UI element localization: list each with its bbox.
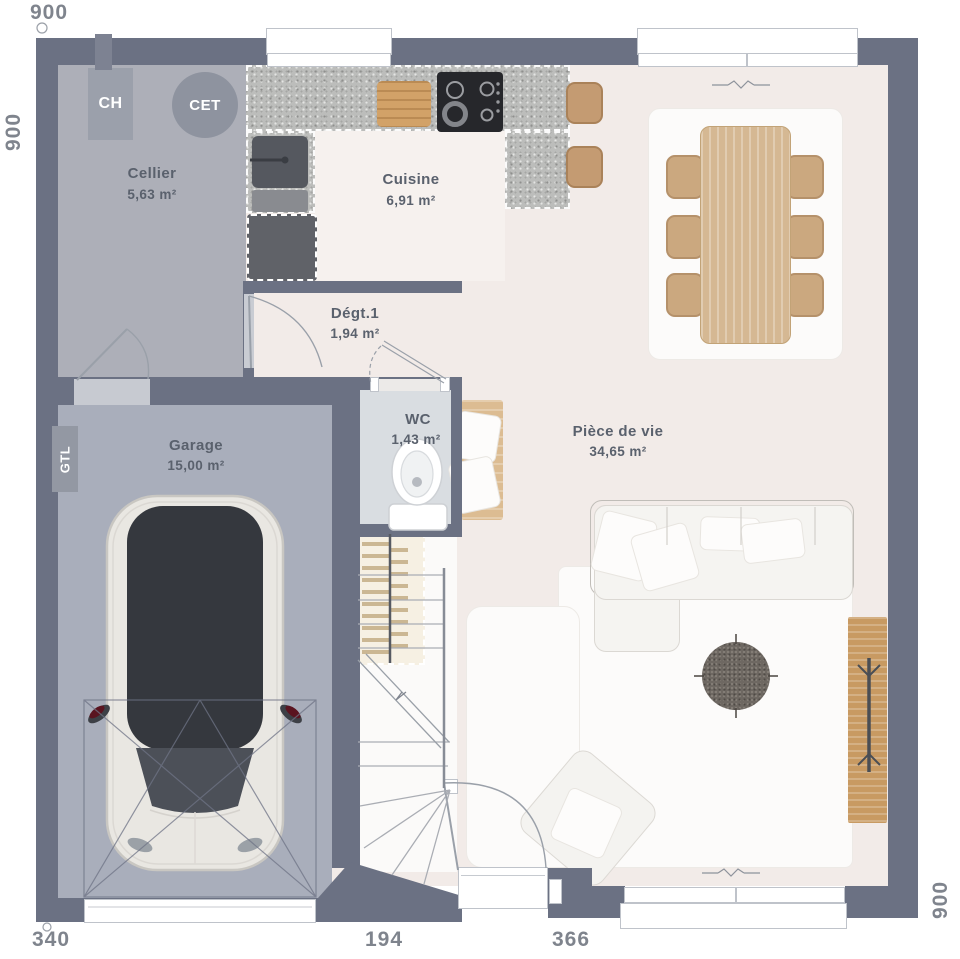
door-jamb: [440, 377, 450, 392]
room-area-wc: 1,43 m²: [391, 432, 440, 447]
window-mullion: [735, 887, 737, 903]
entry-door-jamb: [549, 879, 562, 904]
dimension-bottom-living: 366: [552, 928, 590, 952]
entry-door-frame-line: [461, 872, 545, 876]
room-label-cellier: Cellier: [128, 165, 177, 182]
gtl-box: GTL: [52, 426, 78, 492]
door-jamb: [444, 779, 458, 794]
garage-door-line: [88, 906, 312, 908]
door-gap-wc: [372, 379, 444, 391]
wall-wc-bottom: [358, 524, 462, 537]
dining-chair: [786, 273, 824, 317]
window-top-dining-frame: [638, 53, 858, 67]
door-gap-garage-cellier: [74, 379, 150, 405]
boiler-flue: [95, 34, 112, 70]
room-label-piece-de-vie: Pièce de vie: [573, 423, 664, 440]
cooktop: [437, 72, 503, 132]
window-top-kitchen-frame: [267, 53, 391, 67]
water-heater-label: CET: [189, 97, 221, 114]
bar-stool: [566, 146, 603, 188]
sofa-pillow: [740, 517, 806, 564]
room-label-cuisine: Cuisine: [383, 171, 440, 188]
window-mullion: [746, 53, 748, 67]
dining-chair: [666, 273, 704, 317]
dimension-right: 900: [929, 881, 953, 919]
dimension-top: 900: [30, 1, 68, 25]
coffee-pouf: [702, 642, 770, 710]
wall-right: [888, 38, 918, 918]
door-jamb: [370, 377, 379, 392]
kitchen-sink: [252, 136, 308, 188]
cutting-board: [377, 81, 431, 127]
dining-chair: [666, 215, 704, 259]
dining-table: [700, 126, 791, 344]
dimension-bottom-garage: 340: [32, 928, 70, 952]
window-top-dining: [637, 28, 858, 55]
boiler-label-box: CH: [88, 68, 133, 140]
room-area-piece-de-vie: 34,65 m²: [589, 444, 646, 459]
room-label-degt1: Dégt.1: [331, 305, 379, 322]
room-area-cuisine: 6,91 m²: [386, 193, 435, 208]
armchair-cushion: [548, 786, 624, 861]
garage-door: [84, 899, 316, 923]
room-area-garage: 15,00 m²: [167, 458, 224, 473]
floor-plan: GTL: [0, 0, 960, 959]
room-area-degt1: 1,94 m²: [330, 326, 379, 341]
wall-bottom-living-right: [845, 886, 888, 918]
room-label-garage: Garage: [169, 437, 223, 454]
dining-chair: [786, 215, 824, 259]
wall-wc-right: [451, 390, 462, 536]
dimension-bottom-entrance: 194: [365, 928, 403, 952]
dining-chair: [666, 155, 704, 199]
door-gap-cellier-degt: [244, 294, 254, 368]
dining-chair: [786, 155, 824, 199]
bar-stool: [566, 82, 603, 124]
window-bottom-living: [620, 903, 847, 929]
tv-sideboard: [848, 617, 887, 823]
boiler-label: CH: [98, 95, 122, 113]
water-heater-label-box: CET: [172, 72, 238, 138]
room-label-wc: WC: [405, 411, 431, 428]
wall-kitchen-degt: [246, 281, 462, 293]
closet-shelves: [362, 542, 389, 657]
kitchen-appliance: [247, 214, 317, 281]
floor-garage: [58, 405, 332, 898]
kitchen-bar-counter: [505, 131, 570, 209]
dishwasher: [252, 190, 308, 212]
closet-shelves: [391, 548, 408, 654]
dimension-left: 900: [2, 113, 26, 151]
wall-garage-right: [332, 377, 360, 868]
gtl-label: GTL: [58, 445, 73, 473]
window-top-kitchen: [266, 28, 392, 55]
room-area-cellier: 5,63 m²: [127, 187, 176, 202]
